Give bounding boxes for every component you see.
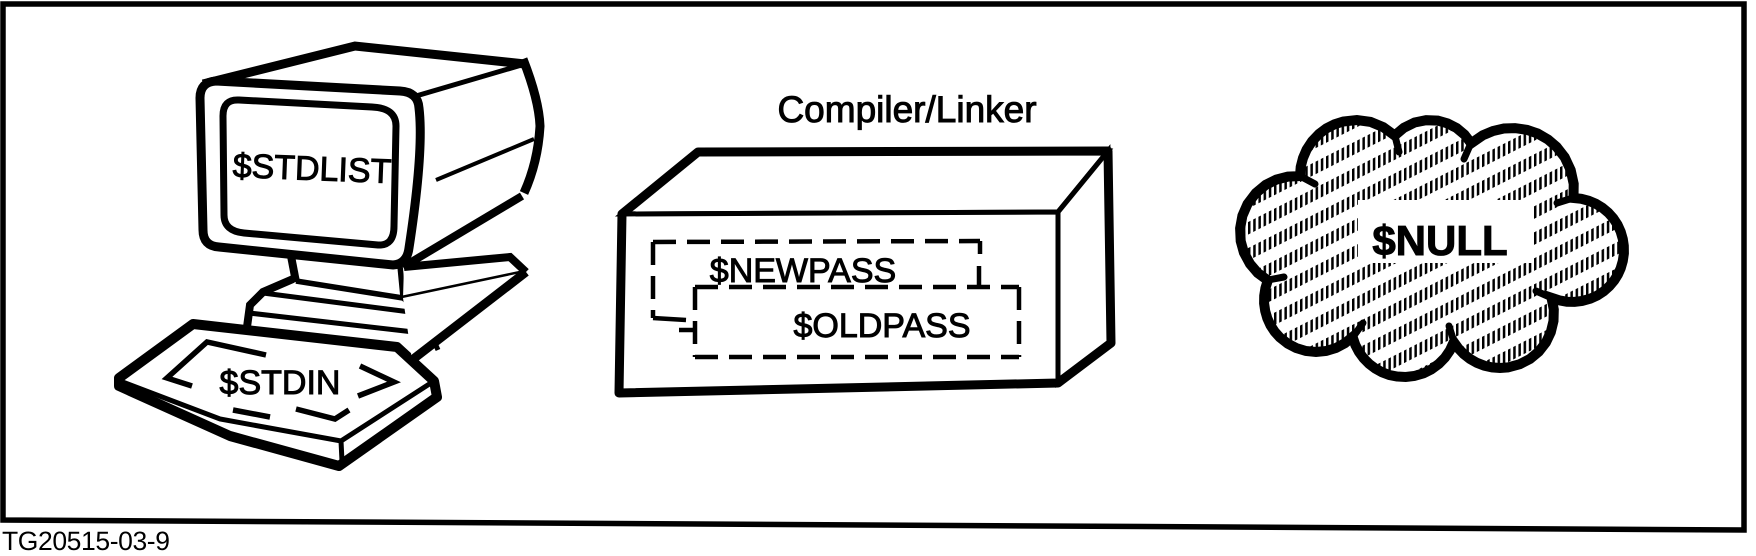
svg-text:$OLDPASS: $OLDPASS: [793, 307, 970, 345]
svg-text:Compiler/Linker: Compiler/Linker: [777, 89, 1036, 130]
svg-text:TG20515-03-9: TG20515-03-9: [2, 526, 170, 551]
svg-text:$NEWPASS: $NEWPASS: [710, 252, 896, 290]
svg-text:$STDIN: $STDIN: [220, 364, 341, 402]
svg-text:$NULL: $NULL: [1372, 217, 1507, 264]
svg-text:$STDLIST: $STDLIST: [232, 147, 392, 191]
